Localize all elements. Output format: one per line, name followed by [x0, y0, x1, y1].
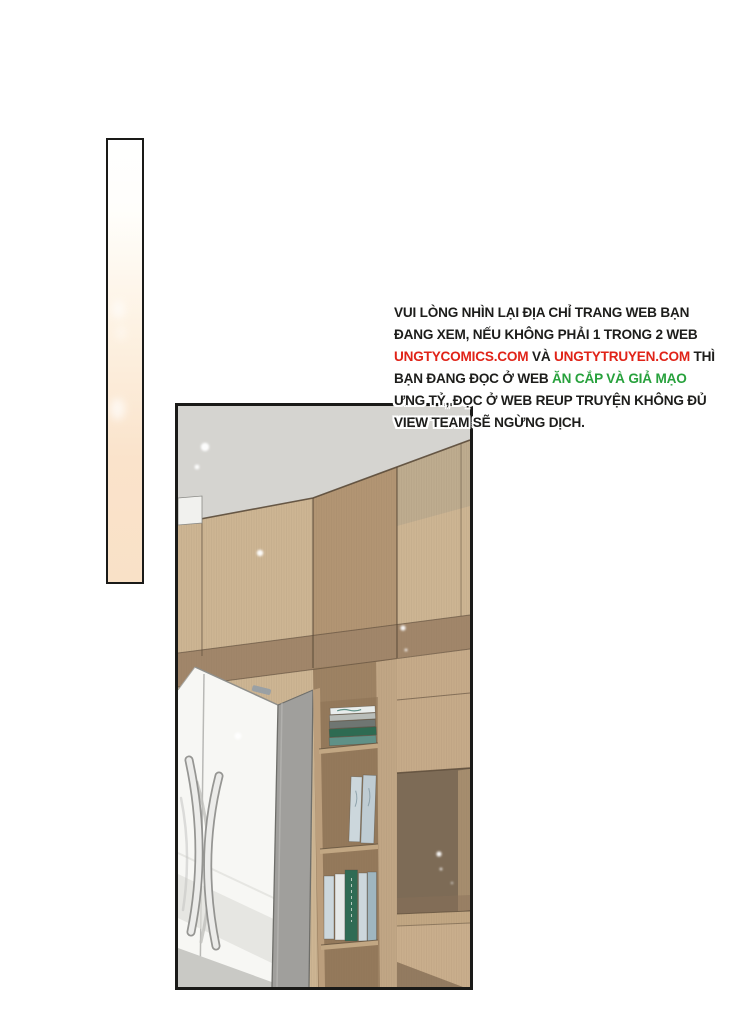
light-glow	[116, 326, 126, 340]
notice-text-segment: UNGTYTRUYEN.COM	[554, 348, 690, 364]
books-top-stack	[328, 706, 377, 746]
notice-line: BẠN ĐANG ĐỌC Ở WEB ĂN CẮP VÀ GIẢ MẠO	[394, 367, 715, 389]
notice-text-segment: ĐANG XEM, NẾU KHÔNG PHẢI 1 TRONG 2 WEB	[394, 326, 697, 342]
refrigerator	[178, 667, 280, 987]
light-glow	[112, 300, 125, 319]
notice-text-segment: UNGTYCOMICS.COM	[394, 348, 528, 364]
light-glow	[110, 398, 125, 420]
gray-side-column	[272, 690, 313, 987]
comic-page: VUI LÒNG NHÌN LẠI ĐỊA CHỈ TRANG WEB BẠNĐ…	[0, 0, 756, 1033]
notice-text-segment: VUI LÒNG NHÌN LẠI ĐỊA CHỈ TRANG WEB BẠN	[394, 304, 689, 320]
vertical-gradient-panel	[106, 138, 144, 584]
notice-line: UNGTYCOMICS.COM VÀ UNGTYTRUYEN.COM THÌ	[394, 345, 715, 367]
anti-piracy-notice: VUI LÒNG NHÌN LẠI ĐỊA CHỈ TRANG WEB BẠNĐ…	[394, 301, 715, 433]
white-wall-piece	[178, 496, 202, 525]
notice-text-segment: BẠN ĐANG ĐỌC Ở WEB	[394, 370, 552, 386]
main-panel	[175, 403, 473, 990]
notice-line: VUI LÒNG NHÌN LẠI ĐỊA CHỈ TRANG WEB BẠN	[394, 301, 715, 323]
notice-text-segment: ĂN CẮP VÀ GIẢ MẠO	[552, 370, 687, 386]
notice-line: ƯNG TỶ, ĐỌC Ở WEB REUP TRUYỆN KHÔNG ĐỦ	[394, 389, 715, 411]
notice-text-segment: ƯNG TỶ, ĐỌC Ở WEB REUP TRUYỆN KHÔNG ĐỦ	[394, 392, 707, 408]
books-bottom	[324, 870, 377, 941]
notice-line: VIEW TEAM SẼ NGỪNG DỊCH.	[394, 411, 715, 433]
notice-line: ĐANG XEM, NẾU KHÔNG PHẢI 1 TRONG 2 WEB	[394, 323, 715, 345]
notice-text-segment: VÀ	[528, 348, 554, 364]
kitchen-scene-illustration	[178, 406, 470, 987]
notice-text-segment: VIEW TEAM SẼ NGỪNG DỊCH.	[394, 414, 585, 430]
notice-text-segment: THÌ	[690, 348, 715, 364]
